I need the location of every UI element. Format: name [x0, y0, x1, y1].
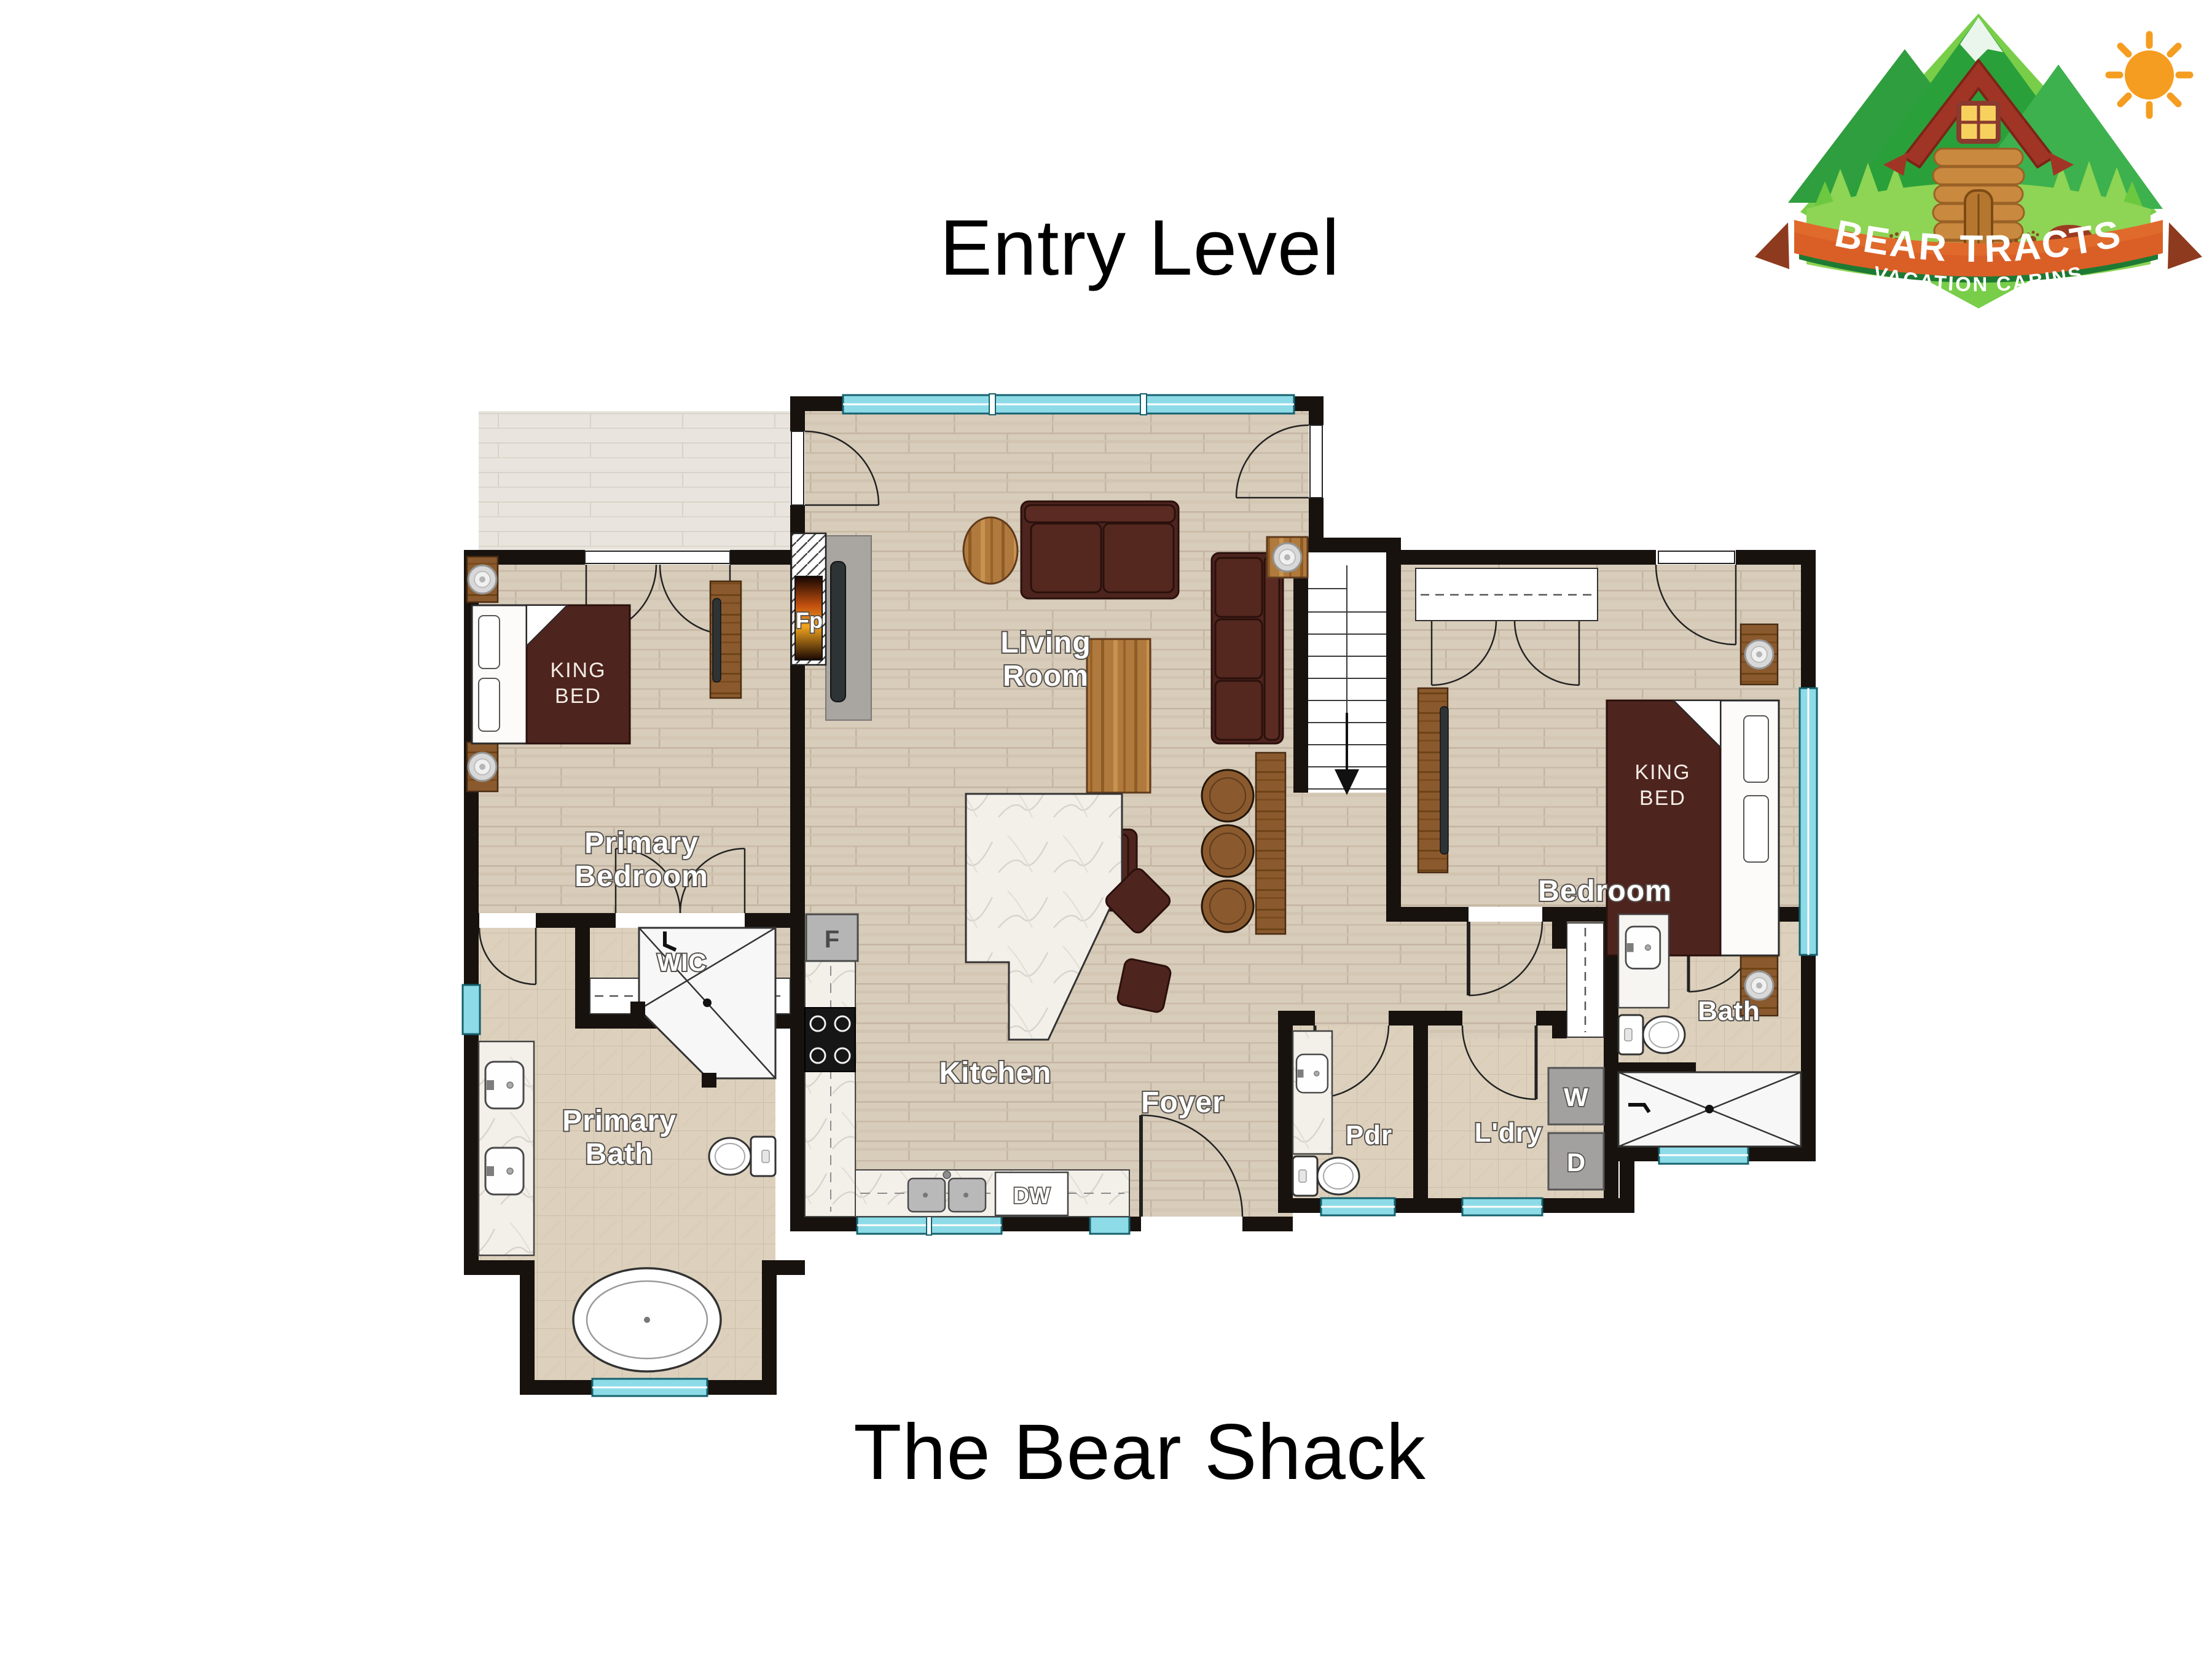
sofa — [1212, 553, 1283, 743]
kitchen-label: Kitchen — [939, 1057, 1051, 1089]
wall-segment — [1242, 1217, 1293, 1231]
living-room-window-band — [843, 394, 1294, 415]
primary-bath-label-1: Primary — [562, 1105, 677, 1137]
bar-console — [1256, 753, 1285, 934]
wall-segment — [1604, 1062, 1618, 1213]
bath-shower — [1618, 1072, 1801, 1147]
sink — [485, 1148, 524, 1194]
dryer-label: D — [1567, 1148, 1585, 1177]
wall-segment — [1386, 552, 1401, 922]
primary-tv — [713, 598, 721, 682]
window — [1090, 1217, 1129, 1234]
primary-bedroom-label-1: Primary — [584, 827, 699, 860]
washer-label: W — [1564, 1083, 1588, 1112]
wall-segment — [1002, 1217, 1090, 1231]
living-room-label-2: Room — [1003, 660, 1089, 692]
floor-title: Entry Level — [449, 203, 1831, 293]
wall-segment — [1748, 1147, 1816, 1161]
coffee-table — [1087, 639, 1150, 793]
wall-segment — [1278, 1198, 1321, 1213]
primary-bedroom-label-2: Bedroom — [575, 860, 708, 893]
window — [463, 985, 480, 1034]
toilet — [709, 1137, 775, 1176]
bedroom-window — [1800, 688, 1817, 955]
foyer-label: Foyer — [1141, 1086, 1225, 1119]
sink — [1296, 1054, 1328, 1092]
laundry-label: L'dry — [1475, 1118, 1543, 1148]
king-bed-2-label-2: BED — [1639, 786, 1686, 810]
wall-segment — [1293, 538, 1401, 552]
lamp — [468, 565, 496, 594]
wic-label: WIC — [657, 949, 707, 976]
linen-closet — [1567, 923, 1604, 1037]
living-room-label-1: Living — [1000, 627, 1091, 659]
loveseat — [1021, 501, 1179, 598]
dishwasher-label: DW — [1013, 1183, 1050, 1208]
laundry-window — [1462, 1198, 1542, 1215]
wall-segment — [464, 913, 479, 928]
wall-segment — [790, 1217, 857, 1231]
bath-window — [1659, 1147, 1748, 1164]
king-bed-label-2: BED — [555, 684, 602, 708]
bedroom-closet — [1416, 568, 1598, 621]
floor-plan: KING BED — [449, 381, 1831, 1413]
wall-segment — [520, 1380, 592, 1395]
sink — [1626, 927, 1660, 968]
wall-segment — [762, 1260, 777, 1395]
bedroom-label: Bedroom — [1538, 875, 1672, 908]
king-bed-2-label-1: KING — [1634, 761, 1690, 784]
tub-window — [592, 1379, 707, 1396]
island-chair — [1116, 958, 1172, 1013]
wall-segment — [762, 1260, 805, 1275]
lamp — [1273, 543, 1301, 571]
bedroom-tv — [1440, 707, 1448, 854]
bedroom-tv-console — [1418, 688, 1448, 873]
dishwasher: DW — [995, 1172, 1068, 1215]
king-bed: KING BED — [472, 605, 630, 743]
corner-side-table — [1267, 537, 1308, 578]
oval-side-table — [963, 517, 1018, 584]
fireplace-label: Fp — [796, 608, 823, 633]
wall-segment — [1413, 1011, 1428, 1213]
property-title: The Bear Shack — [449, 1407, 1831, 1497]
toilet — [1293, 1156, 1359, 1196]
sink — [485, 1062, 524, 1108]
toilet — [1618, 1015, 1685, 1054]
lamp — [468, 753, 496, 781]
deck-floor — [479, 411, 790, 550]
wall-segment — [464, 1034, 479, 1275]
wall-segment — [1604, 1147, 1659, 1161]
lamp — [1745, 640, 1773, 669]
stove — [805, 1008, 855, 1072]
wall-segment — [790, 913, 805, 1231]
wall-segment — [520, 1260, 535, 1395]
wall-segment — [790, 396, 805, 431]
wall-segment — [575, 928, 590, 1029]
wall-segment — [1278, 1011, 1293, 1213]
wall-segment — [1401, 907, 1469, 922]
primary-tv-console — [710, 581, 741, 698]
page: Entry Level The Bear Shack — [0, 0, 2212, 1659]
fridge-label: F — [825, 926, 839, 953]
king-bed-label-1: KING — [550, 659, 606, 682]
bar-stools — [1202, 770, 1253, 932]
primary-bath-label-2: Bath — [586, 1138, 654, 1171]
powder-window — [1321, 1198, 1395, 1215]
wall-segment — [1401, 550, 1656, 565]
wall-segment — [1552, 922, 1567, 949]
living-tv — [831, 562, 845, 702]
wall-segment — [1389, 1011, 1413, 1026]
wall-segment — [1395, 1198, 1462, 1213]
sun-icon — [2109, 34, 2190, 116]
bear-tracts-logo: BEAR TRACTS VACATION CABINS — [1751, 6, 2206, 313]
wall-segment — [1309, 396, 1324, 425]
foyer-floor — [1293, 793, 1401, 928]
wall-segment — [1129, 1217, 1141, 1231]
bathtub — [573, 1268, 721, 1371]
kitchen-window — [857, 1215, 1002, 1235]
powder-label: Pdr — [1346, 1120, 1392, 1150]
wall-segment — [1413, 1011, 1462, 1026]
wall-segment — [536, 913, 616, 928]
bath-label: Bath — [1698, 996, 1760, 1026]
